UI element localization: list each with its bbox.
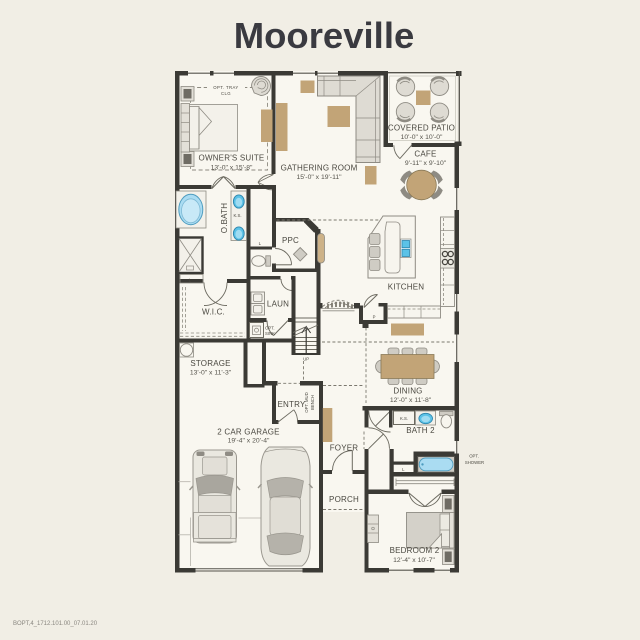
svg-text:BEDROOM 2: BEDROOM 2 [390,546,440,555]
svg-text:12'-0" x 11'-8": 12'-0" x 11'-8" [390,397,432,404]
svg-text:STORAGE: STORAGE [190,359,230,368]
svg-text:LAUN: LAUN [267,300,289,309]
svg-text:2 CAR GARAGE: 2 CAR GARAGE [217,428,279,437]
svg-text:SINK: SINK [265,331,275,336]
svg-text:13'-0" x 15'-8": 13'-0" x 15'-8" [211,165,253,172]
svg-text:FOYER: FOYER [330,444,359,453]
svg-text:BOPT,4_1712.101.00_07.01.20: BOPT,4_1712.101.00_07.01.20 [13,621,98,627]
svg-text:12'-4" x 10'-7": 12'-4" x 10'-7" [393,557,435,564]
svg-text:13'-0" x 11'-3": 13'-0" x 11'-3" [190,370,232,377]
svg-text:PPC: PPC [282,236,299,245]
svg-text:10'-0" x 10'-0": 10'-0" x 10'-0" [401,134,443,141]
svg-text:BATH 2: BATH 2 [406,426,435,435]
svg-text:15'-0" x 19'-11": 15'-0" x 19'-11" [296,174,342,181]
svg-text:KITCHEN: KITCHEN [388,283,425,292]
svg-text:COVERED PATIO: COVERED PATIO [388,124,455,133]
svg-text:PORCH: PORCH [329,495,359,504]
svg-text:CLG: CLG [221,91,231,96]
svg-text:GATHERING ROOM: GATHERING ROOM [281,164,358,173]
svg-text:DINING: DINING [393,387,422,396]
svg-text:CAFE: CAFE [414,150,436,159]
svg-text:Mooreville: Mooreville [234,15,415,56]
svg-text:SHOWER: SHOWER [465,460,484,465]
svg-text:ENTRY: ENTRY [278,400,306,409]
svg-text:OPT. MUD: OPT. MUD [304,392,309,413]
svg-text:BENCH: BENCH [310,395,315,410]
svg-text:K.S.: K.S. [400,416,408,421]
svg-text:OPT.: OPT. [265,326,275,331]
svg-text:OWNER'S SUITE: OWNER'S SUITE [199,154,265,163]
svg-text:K.S.: K.S. [233,213,241,218]
svg-text:W.I.C.: W.I.C. [202,308,225,317]
svg-text:UP: UP [303,357,309,362]
svg-text:OPT.: OPT. [469,454,479,459]
svg-text:O.BATH: O.BATH [220,203,229,233]
svg-text:19'-4" x 20'-4": 19'-4" x 20'-4" [228,438,270,445]
svg-text:9'-11" x 9'-10": 9'-11" x 9'-10" [405,160,447,167]
svg-text:OPT. TRAY: OPT. TRAY [213,85,238,90]
svg-text:P: P [373,314,376,319]
